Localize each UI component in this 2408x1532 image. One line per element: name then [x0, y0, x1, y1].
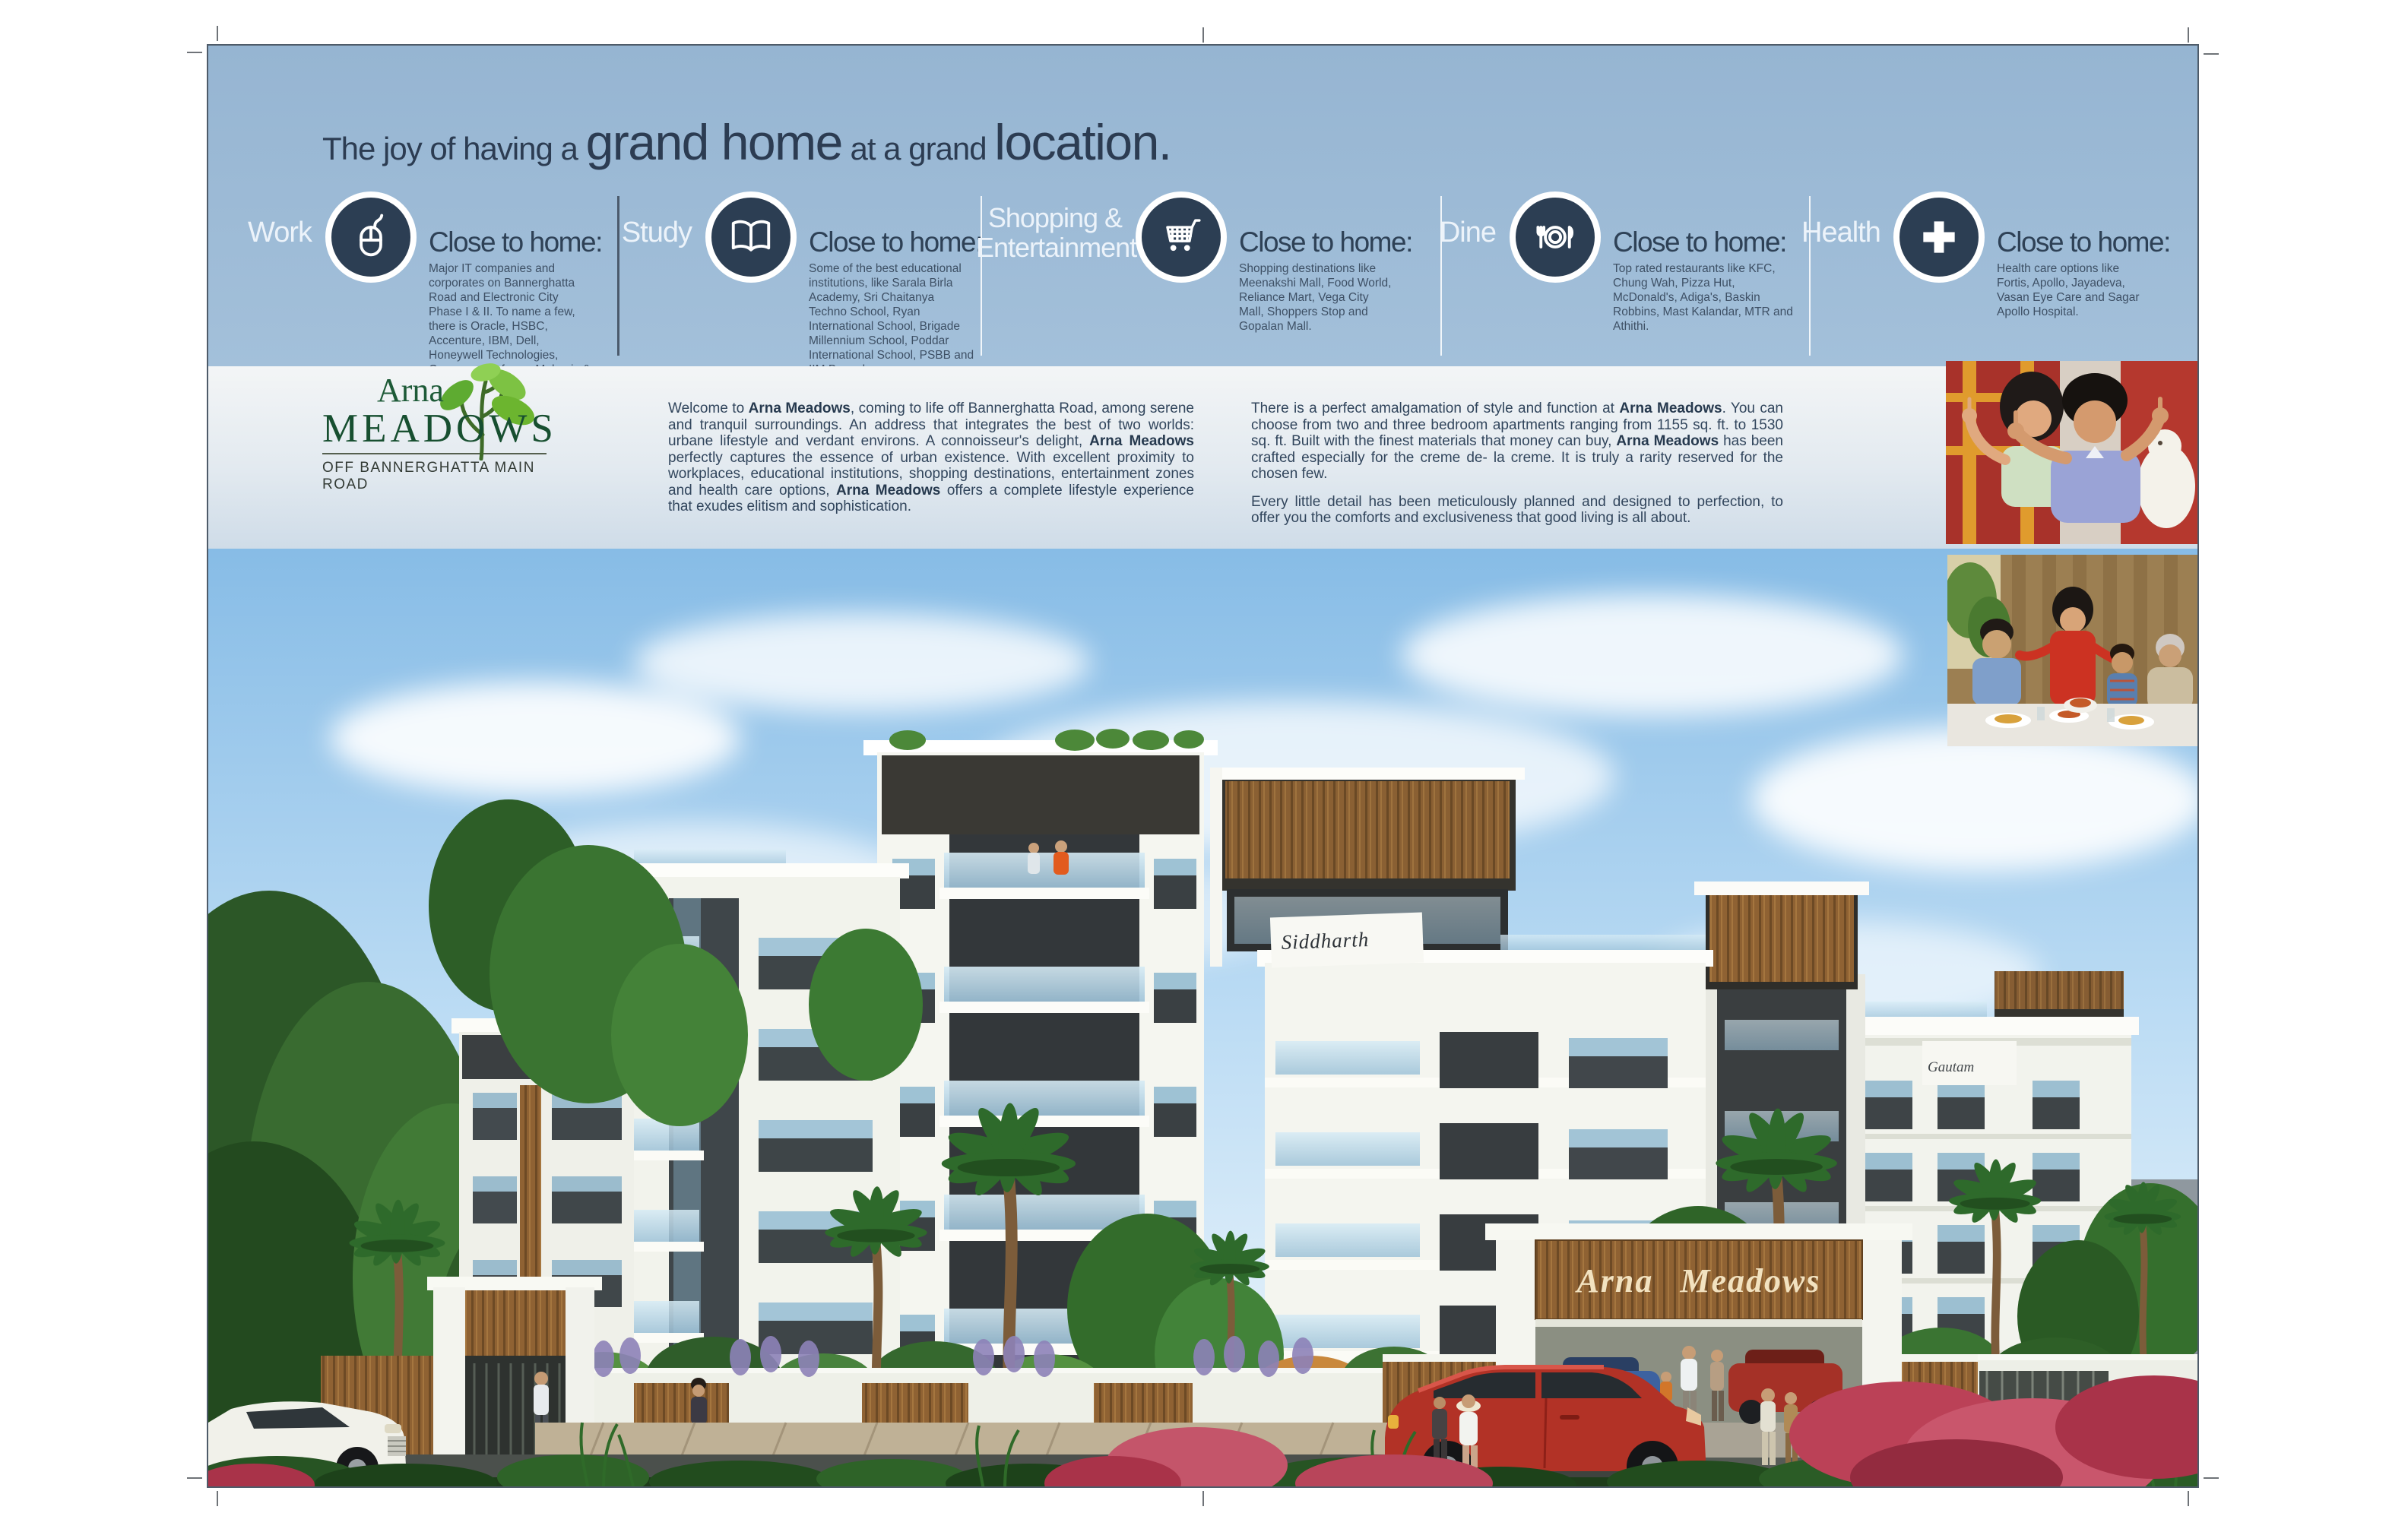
building-sign-gautam: Gautam — [1928, 1059, 1974, 1075]
crop-mark — [217, 26, 218, 41]
column-health: Health Close to home: Health care option… — [1801, 191, 2170, 319]
close-to-home-heading: Close to home: — [1613, 228, 1801, 256]
column-health-body: Health care options like Fortis, Apollo,… — [1997, 261, 2149, 319]
close-to-home-heading: Close to home: — [809, 228, 982, 256]
open-book-icon — [705, 191, 797, 283]
column-work-label: Work — [231, 191, 312, 248]
gate-sign: Arna Meadows — [1574, 1262, 1820, 1299]
crop-mark — [2204, 53, 2219, 55]
column-study: Study Close to home: Some of the best ed… — [610, 191, 982, 377]
crop-mark — [187, 52, 202, 53]
headline-part-2: grand home — [586, 114, 842, 170]
column-study-body: Some of the best educational institution… — [809, 261, 974, 377]
close-to-home-heading: Close to home: — [1239, 228, 1412, 256]
headline-part-4: location. — [994, 114, 1171, 170]
column-dine-label: Dine — [1437, 191, 1496, 248]
family-dining-photo — [1947, 555, 2199, 746]
headline: The joy of having a grand home at a gran… — [322, 117, 1171, 167]
column-shopping: Shopping & Entertainment Close to home: … — [976, 191, 1412, 334]
column-dine: Dine Close to home: Top rated restaurant… — [1437, 191, 1801, 334]
boy — [2107, 644, 2137, 707]
crop-mark — [2188, 1491, 2189, 1506]
medical-cross-icon — [1893, 191, 1985, 283]
column-dine-body: Top rated restaurants like KFC, Chung Wa… — [1613, 261, 1801, 334]
intro-paragraph-right: There is a perfect amalgamation of style… — [1251, 400, 1783, 538]
column-study-label: Study — [610, 191, 692, 248]
crop-mark — [2204, 1477, 2219, 1479]
intro-paragraph-left: Welcome to Arna Meadows, coming to life … — [668, 400, 1194, 515]
computer-mouse-icon — [325, 191, 417, 283]
crop-mark — [1202, 1491, 1204, 1506]
column-shopping-body: Shopping destinations like Meenakshi Mal… — [1239, 261, 1395, 334]
brochure-sheet: The joy of having a grand home at a gran… — [207, 44, 2199, 1488]
brochure-page: The joy of having a grand home at a gran… — [0, 0, 2408, 1532]
crop-mark — [217, 1491, 218, 1506]
headline-part-1: The joy of having a — [322, 131, 586, 166]
close-to-home-heading: Close to home: — [1997, 228, 2170, 256]
logo-tagline: OFF BANNERGHATTA MAIN ROAD — [322, 460, 547, 493]
arna-meadows-logo: Arna MEADOWS OFF BANNERGHATTA MAIN ROAD — [322, 374, 547, 493]
column-work: Work Close to home: Major IT companies a… — [231, 191, 602, 391]
logo-line-1: Arna — [377, 374, 547, 407]
crop-mark — [187, 1477, 202, 1479]
shopping-cart-icon — [1136, 191, 1227, 283]
logo-line-2: MEADOWS — [322, 409, 547, 449]
intro-band: Arna MEADOWS OFF BANNERGHATTA MAIN ROAD … — [208, 366, 2197, 549]
close-to-home-heading: Close to home: — [429, 228, 602, 256]
headline-part-3: at a grand — [842, 131, 994, 166]
header-band: The joy of having a grand home at a gran… — [208, 46, 2197, 366]
crop-mark — [1202, 27, 1204, 43]
column-health-label: Health — [1801, 191, 1880, 248]
building-render: Gautam — [208, 549, 2199, 1488]
column-shopping-label: Shopping & Entertainment — [976, 191, 1122, 263]
couple-photo — [1946, 361, 2199, 544]
intro-paragraph-3: Every little detail has been meticulousl… — [1251, 494, 1783, 527]
building-sign-siddharth: Siddharth — [1281, 928, 1369, 954]
dining-table — [1947, 698, 2199, 746]
plate-cutlery-icon — [1510, 191, 1601, 283]
crop-mark — [2188, 27, 2189, 43]
